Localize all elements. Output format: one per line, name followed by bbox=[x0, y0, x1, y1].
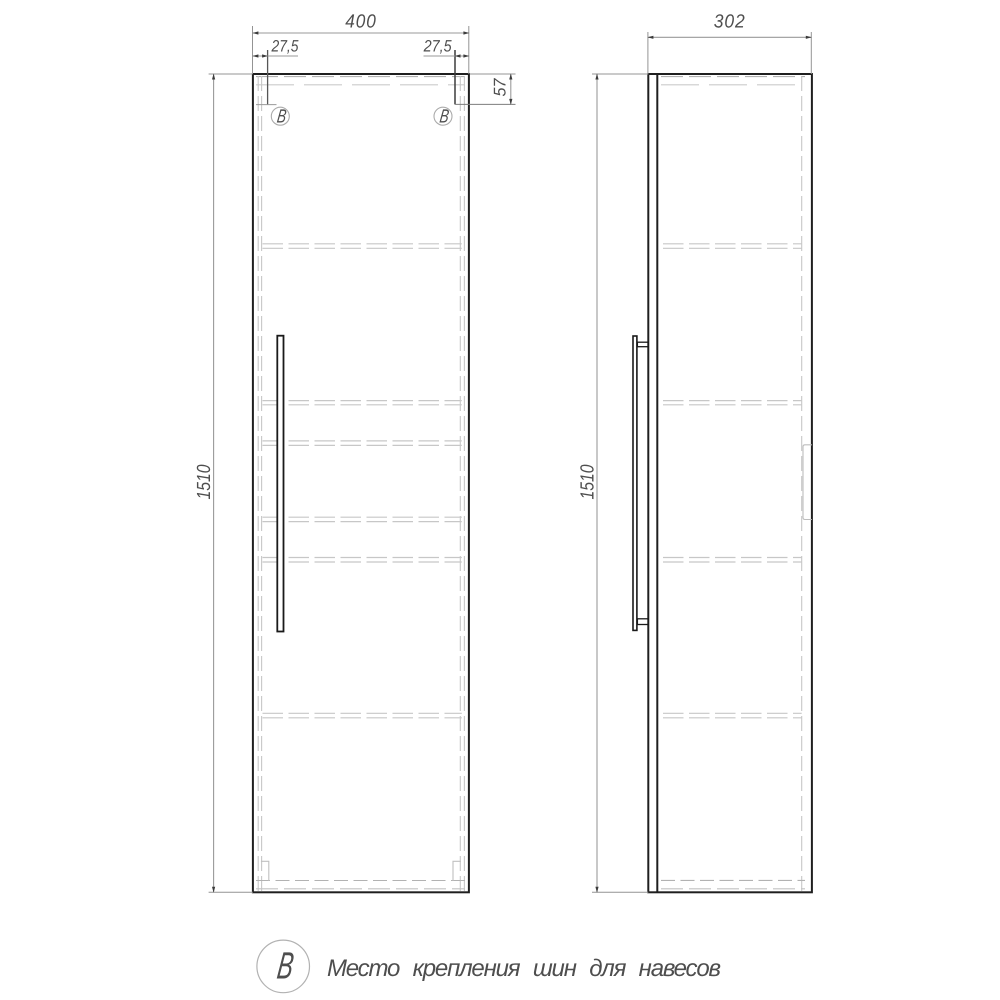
svg-text:1510: 1510 bbox=[578, 464, 599, 499]
svg-text:B: B bbox=[275, 945, 296, 987]
svg-text:57: 57 bbox=[490, 78, 509, 97]
svg-text:1510: 1510 bbox=[194, 464, 215, 499]
svg-text:Место крепления шин для навесо: Место крепления шин для навесов bbox=[327, 955, 721, 982]
svg-text:B: B bbox=[276, 106, 288, 127]
svg-text:302: 302 bbox=[714, 12, 746, 33]
svg-text:B: B bbox=[438, 106, 450, 127]
svg-text:27,5: 27,5 bbox=[423, 38, 453, 56]
svg-text:27,5: 27,5 bbox=[271, 38, 300, 56]
svg-text:400: 400 bbox=[345, 12, 377, 33]
